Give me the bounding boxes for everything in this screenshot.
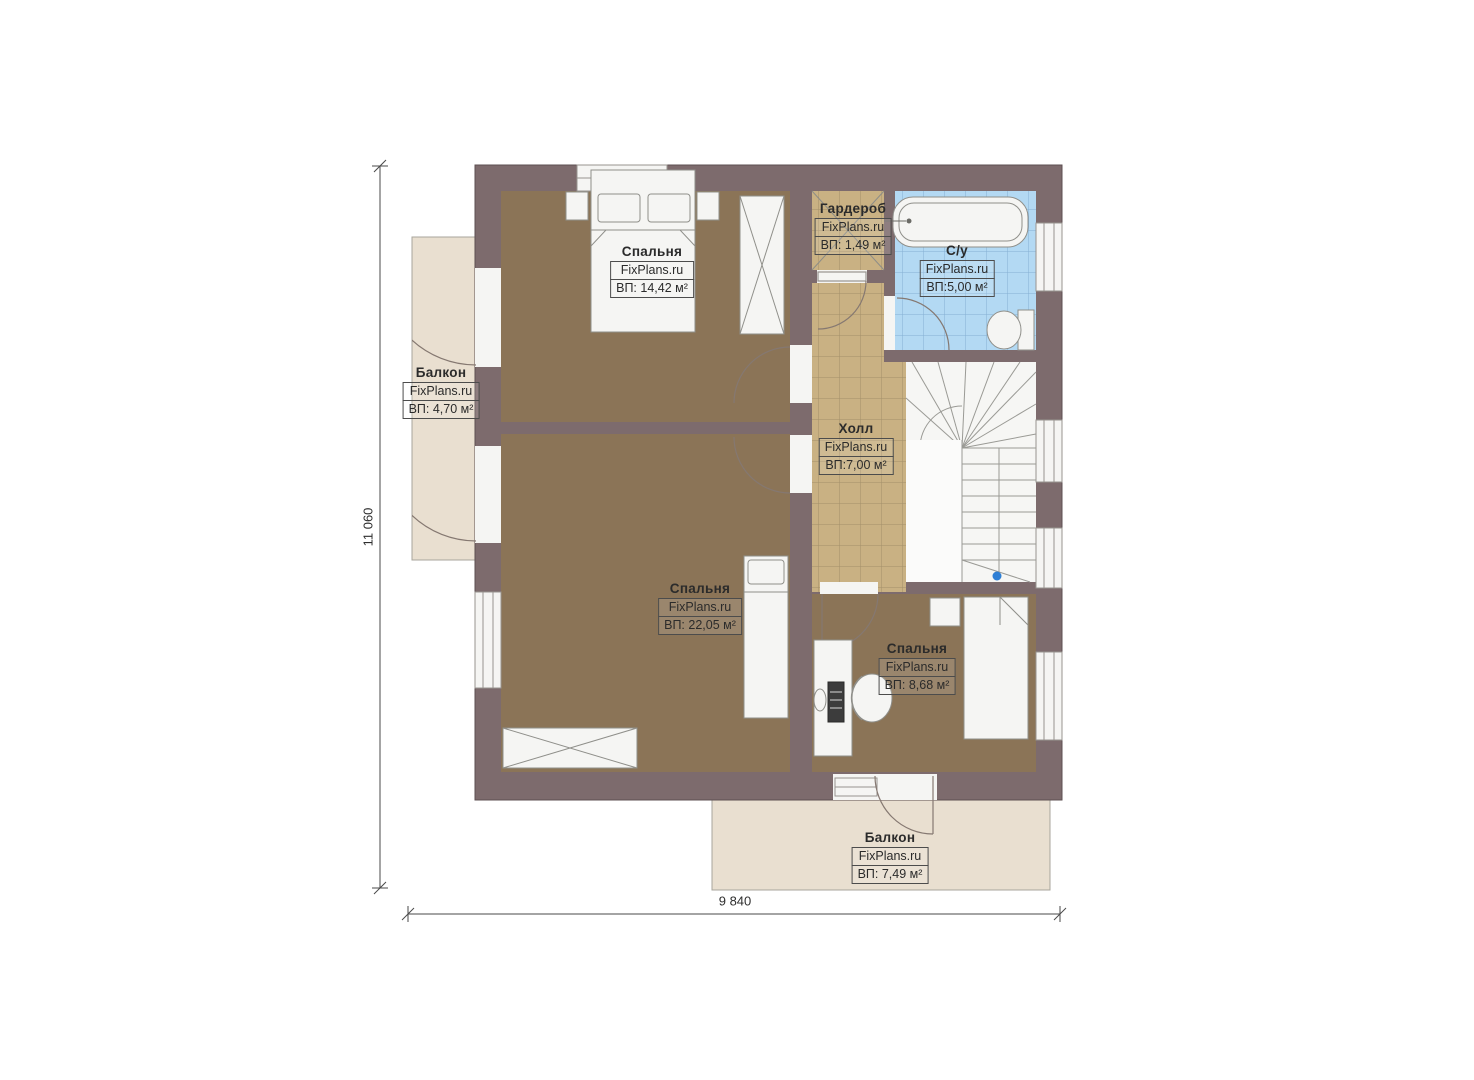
wardrobe-door-leaf: [818, 272, 866, 281]
watermark: FixPlans.ru: [403, 382, 480, 401]
dimension-width-label: 9 840: [719, 894, 752, 909]
window-right-bathroom: [1036, 223, 1062, 291]
room-label-bathroom: С/у FixPlans.ru ВП:5,00 м²: [920, 243, 995, 297]
room-name: Спальня: [658, 581, 742, 596]
room-name: Спальня: [610, 244, 694, 259]
floor-plan-drawing: [0, 0, 1474, 1080]
watermark: FixPlans.ru: [658, 598, 742, 617]
room-label-hall: Холл FixPlans.ru ВП:7,00 м²: [819, 421, 894, 475]
window-bottom-bedroom3: [835, 778, 877, 796]
window-right-stairs-lower: [1036, 528, 1062, 588]
room-area: ВП: 8,68 м²: [879, 676, 956, 695]
room-name: Гардероб: [815, 201, 892, 216]
room-label-wardrobe: Гардероб FixPlans.ru ВП: 1,49 м²: [815, 201, 892, 255]
wardrobe-cabinet-bedroom1: [740, 196, 784, 334]
room-area: ВП: 4,70 м²: [403, 400, 480, 419]
room-area: ВП:7,00 м²: [819, 456, 894, 475]
room-name: Балкон: [852, 830, 929, 845]
bed-single-bedroom3: [964, 597, 1028, 739]
room-area: ВП: 7,49 м²: [852, 865, 929, 884]
room-name: Балкон: [403, 365, 480, 380]
watermark: FixPlans.ru: [879, 658, 956, 677]
room-area: ВП:5,00 м²: [920, 278, 995, 297]
nightstand-bedroom3: [930, 598, 960, 626]
wardrobe-cabinet-bedroom2: [503, 728, 637, 768]
watermark: FixPlans.ru: [920, 260, 995, 279]
toilet: [987, 310, 1034, 350]
floor-plan-page: Спальня FixPlans.ru ВП: 14,42 м² Гардеро…: [0, 0, 1474, 1080]
nightstand-right: [697, 192, 719, 220]
room-name: Спальня: [879, 641, 956, 656]
room-area: ВП: 22,05 м²: [658, 616, 742, 635]
watermark: FixPlans.ru: [815, 218, 892, 237]
bathtub: [884, 197, 1028, 247]
watermark: FixPlans.ru: [819, 438, 894, 457]
window-right-stairs-upper: [1036, 420, 1062, 482]
room-label-bedroom-1: Спальня FixPlans.ru ВП: 14,42 м²: [610, 244, 694, 298]
room-label-balcony-bottom: Балкон FixPlans.ru ВП: 7,49 м²: [852, 830, 929, 884]
room-label-balcony-left: Балкон FixPlans.ru ВП: 4,70 м²: [403, 365, 480, 419]
room-label-bedroom-3: Спальня FixPlans.ru ВП: 8,68 м²: [879, 641, 956, 695]
room-name: С/у: [920, 243, 995, 258]
stairwell-void: [906, 440, 962, 582]
bed-bedroom2: [744, 556, 788, 718]
watermark: FixPlans.ru: [852, 847, 929, 866]
room-area: ВП: 1,49 м²: [815, 236, 892, 255]
nightstand-left: [566, 192, 588, 220]
window-right-bedroom3: [1036, 652, 1062, 740]
dimension-height-label: 11 060: [361, 508, 376, 547]
room-name: Холл: [819, 421, 894, 436]
window-left-bedroom2: [475, 592, 501, 688]
room-area: ВП: 14,42 м²: [610, 279, 694, 298]
watermark: FixPlans.ru: [610, 261, 694, 280]
room-label-bedroom-2: Спальня FixPlans.ru ВП: 22,05 м²: [658, 581, 742, 635]
stairs-marker-dot: [993, 572, 1002, 581]
